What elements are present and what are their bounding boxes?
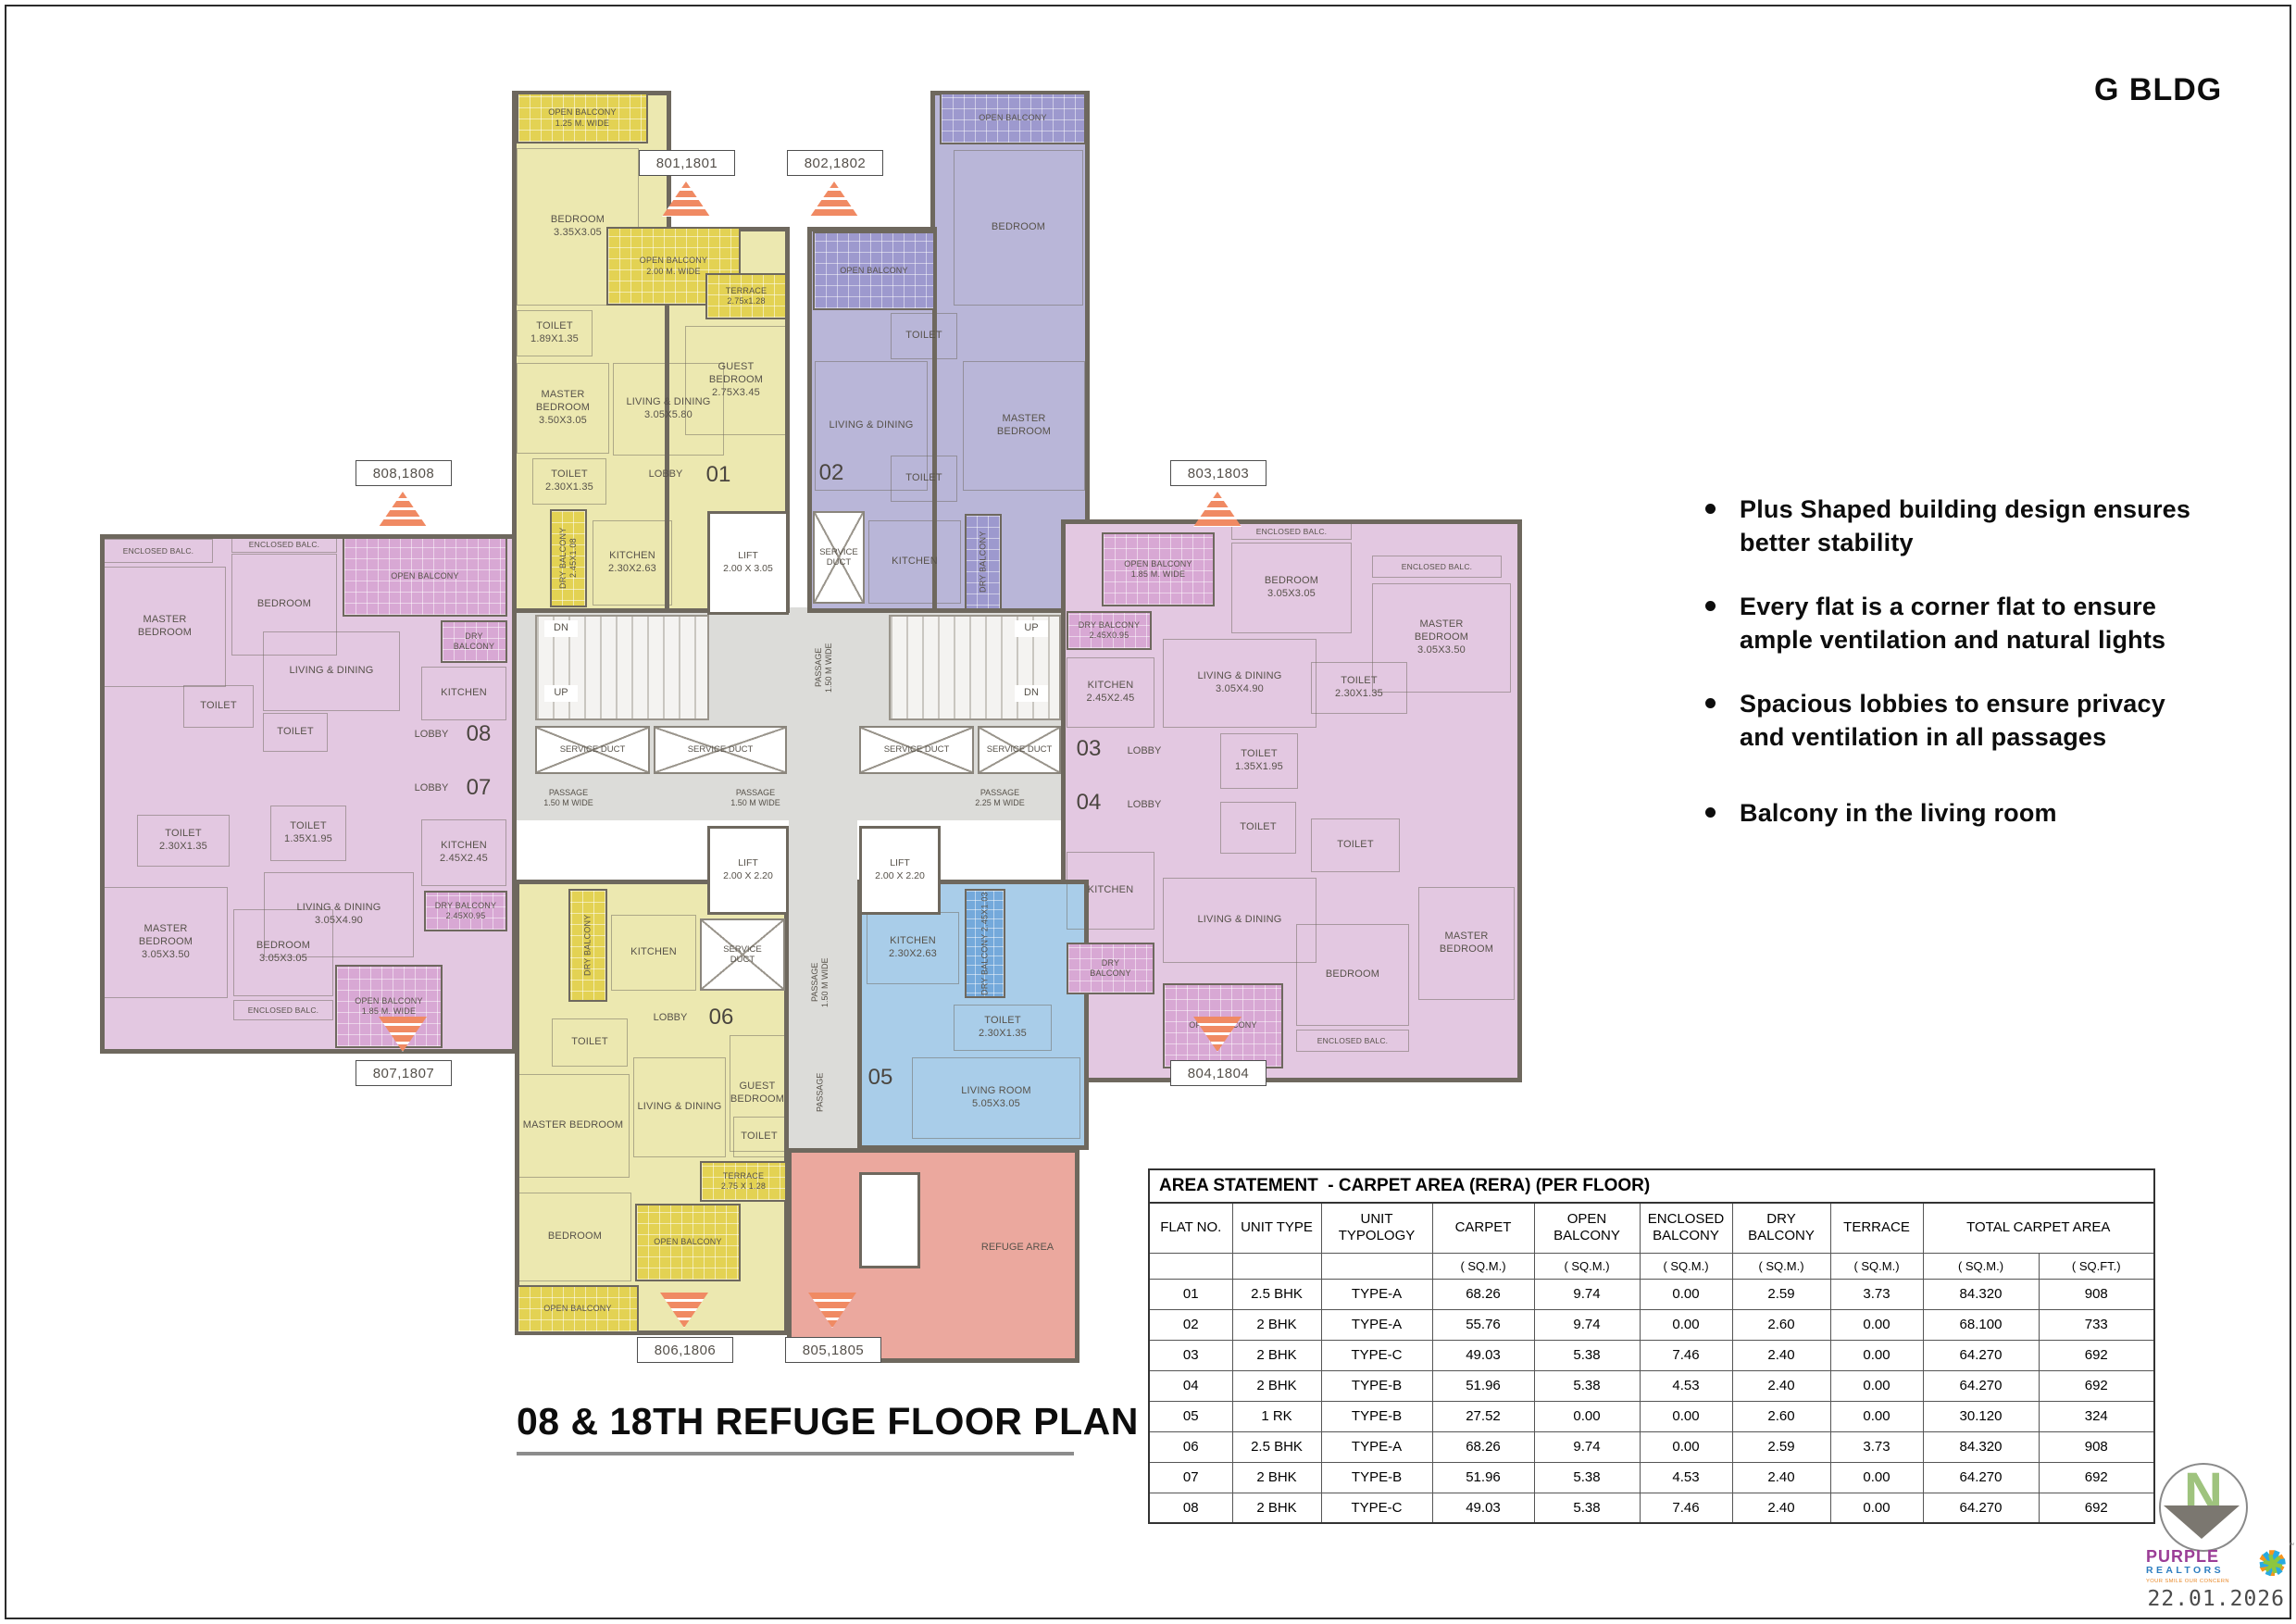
room-toilet: TOILET [891,456,957,502]
cell-enclosed-balcony: 0.00 [1640,1279,1732,1309]
passage-label-vertical: PASSAGE 1.50 M WIDE [794,922,846,1043]
lift-shaft: LIFT 2.00 X 2.20 [707,826,789,915]
service-duct: SERVICE DUCT [700,918,785,991]
room-living-dining: LIVING & DINING [263,631,400,711]
room-master-bedroom: MASTER BEDROOM [517,1074,630,1178]
cell-open-balcony: 9.74 [1534,1431,1640,1462]
north-compass-icon: N [2159,1463,2248,1552]
direction-marker-icon [810,181,858,217]
table-row: 08 2 BHK TYPE-C 49.03 5.38 7.46 2.40 0.0… [1149,1493,2154,1523]
col-unit: ( SQ.M.) [1640,1253,1732,1279]
building-title: G BLDG [2094,72,2222,108]
cell-enclosed-balcony: 0.00 [1640,1431,1732,1462]
brand-subname: REALTORS [2146,1565,2255,1578]
brand-star-icon: ✱ ✱ ✱ ™ [2252,1544,2292,1585]
room-kitchen: KITCHEN [868,520,961,604]
cell-unit-type: 2 BHK [1232,1462,1321,1493]
cell-typology: TYPE-B [1321,1370,1432,1401]
room-master-bedroom: MASTER BEDROOM 3.05X3.50 [104,887,228,998]
service-duct: SERVICE DUCT [535,726,650,774]
table-row: 03 2 BHK TYPE-C 49.03 5.38 7.46 2.40 0.0… [1149,1340,2154,1370]
service-duct: SERVICE DUCT [859,726,974,774]
north-arrow-icon [2164,1505,2240,1539]
cell-carpet: 51.96 [1432,1370,1534,1401]
lobby-label: LOBBY [637,463,694,487]
refuge-notch [859,1172,920,1268]
room-bedroom: BEDROOM 3.05X3.05 [1231,543,1352,633]
cell-carpet: 49.03 [1432,1340,1534,1370]
open-balcony: OPEN BALCONY [517,1285,639,1333]
room-toilet: TOILET 1.35X1.95 [270,806,346,861]
table-row: 01 2.5 BHK TYPE-A 68.26 9.74 0.00 2.59 3… [1149,1279,2154,1309]
unit-label-804: 804,1804 [1170,1060,1267,1086]
cell-unit-type: 2 BHK [1232,1370,1321,1401]
service-duct: SERVICE DUCT [654,726,787,774]
room-toilet: TOILET [1311,818,1400,872]
cell-flat-no: 02 [1149,1309,1232,1340]
unit-label-802: 802,1802 [787,150,883,176]
col-header: UNIT TYPE [1232,1203,1321,1253]
cell-open-balcony: 5.38 [1534,1462,1640,1493]
room-bedroom: BEDROOM [1296,924,1409,1026]
cell-enclosed-balcony: 0.00 [1640,1401,1732,1431]
unit-label-801: 801,1801 [639,150,735,176]
cell-carpet: 55.76 [1432,1309,1534,1340]
cell-total-sqft: 692 [2039,1340,2154,1370]
feature-text: Plus Shaped building design ensures bett… [1740,493,2205,560]
bullet-icon [1705,504,1716,514]
cell-flat-no: 01 [1149,1279,1232,1309]
cell-terrace: 0.00 [1830,1309,1923,1340]
room-toilet: TOILET 2.30X1.35 [137,815,230,867]
cell-typology: TYPE-A [1321,1309,1432,1340]
cell-open-balcony: 0.00 [1534,1401,1640,1431]
col-header: TOTAL CARPET AREA [1923,1203,2154,1253]
cell-terrace: 3.73 [1830,1279,1923,1309]
area-statement-table: AREA STATEMENT - CARPET AREA (RERA) (PER… [1148,1168,2155,1524]
dry-balcony: DRY BALCONY [568,889,607,1002]
cell-terrace: 0.00 [1830,1493,1923,1523]
room-toilet: TOILET 2.30X1.35 [1311,662,1407,714]
feature-item: Plus Shaped building design ensures bett… [1705,493,2205,560]
open-balcony: OPEN BALCONY 1.85 M. WIDE [335,965,443,1048]
room-master-bedroom: MASTER BEDROOM 3.50X3.05 [517,363,609,454]
dry-balcony: DRY BALCONY [965,514,1002,610]
lift-shaft: LIFT 2.00 X 3.05 [707,511,789,615]
room-toilet: TOILET [552,1018,628,1067]
cell-unit-type: 2 BHK [1232,1493,1321,1523]
cell-flat-no: 04 [1149,1370,1232,1401]
col-header: OPEN BALCONY [1534,1203,1640,1253]
unit-number: 03 [1072,735,1105,763]
cell-total-sqft: 908 [2039,1431,2154,1462]
room-toilet: TOILET [891,313,957,359]
room-kitchen: KITCHEN [611,915,696,991]
brand-tagline: YOUR SMILE OUR CONCERN [2146,1578,2255,1586]
service-duct: SERVICE DUCT [978,726,1061,774]
col-unit: ( SQ.M.) [1923,1253,2039,1279]
unit-number: 05 [863,1063,898,1093]
cell-dry-balcony: 2.59 [1732,1279,1830,1309]
terrace: TERRACE 2.75x1.28 [705,273,787,319]
unit-label-805: 805,1805 [785,1337,881,1363]
cell-carpet: 68.26 [1432,1431,1534,1462]
col-unit [1321,1253,1432,1279]
cell-enclosed-balcony: 7.46 [1640,1493,1732,1523]
cell-terrace: 0.00 [1830,1462,1923,1493]
bullet-icon [1705,807,1716,818]
room-kitchen: KITCHEN 2.45X2.45 [421,819,506,886]
cell-enclosed-balcony: 7.46 [1640,1340,1732,1370]
col-unit: ( SQ.M.) [1534,1253,1640,1279]
unit-label-806: 806,1806 [637,1337,733,1363]
bullet-icon [1705,698,1716,708]
cell-total-sqm: 64.270 [1923,1340,2039,1370]
terrace: TERRACE 2.75 X 1.28 [700,1161,787,1202]
room-kitchen: KITCHEN 2.30X2.63 [593,520,672,606]
room-master-bedroom: MASTER BEDROOM [104,567,226,687]
lobby-label: LOBBY [643,1007,698,1030]
passage-label-vertical: PASSAGE [802,1046,839,1139]
col-unit: ( SQ.M.) [1830,1253,1923,1279]
enclosed-balcony: ENCLOSED BALC. [1231,523,1352,540]
page-title: 08 & 18TH REFUGE FLOOR PLAN [517,1400,1139,1443]
feature-item: Balcony in the living room [1705,797,2205,831]
room-toilet: TOILET 1.35X1.95 [1220,733,1298,789]
cell-terrace: 3.73 [1830,1431,1923,1462]
cell-unit-type: 2 BHK [1232,1309,1321,1340]
room-toilet: TOILET [1220,802,1296,854]
table-row: 02 2 BHK TYPE-A 55.76 9.74 0.00 2.60 0.0… [1149,1309,2154,1340]
col-header: TERRACE [1830,1203,1923,1253]
cell-unit-type: 2.5 BHK [1232,1431,1321,1462]
enclosed-balcony: ENCLOSED BALC. [1372,556,1502,578]
stair-up-label: UP [1015,620,1048,637]
open-balcony: OPEN BALCONY [343,537,507,617]
cell-total-sqft: 733 [2039,1309,2154,1340]
room-guest-bedroom: GUEST BEDROOM 2.75X3.45 [685,326,787,435]
passage-label-vertical: PASSAGE 1.50 M WIDE [802,618,846,717]
cell-total-sqm: 64.270 [1923,1462,2039,1493]
cell-flat-no: 06 [1149,1431,1232,1462]
unit-label-808: 808,1808 [356,460,452,486]
cell-total-sqft: 692 [2039,1370,2154,1401]
cell-terrace: 0.00 [1830,1401,1923,1431]
cell-terrace: 0.00 [1830,1370,1923,1401]
cell-typology: TYPE-C [1321,1340,1432,1370]
title-underline [517,1452,1074,1455]
room-toilet: TOILET 2.30X1.35 [954,1005,1052,1051]
room-master-bedroom: MASTER BEDROOM [1418,887,1515,1000]
unit-number: 06 [705,1004,737,1031]
room-master-bedroom: MASTER BEDROOM [963,361,1085,491]
table-body: 01 2.5 BHK TYPE-A 68.26 9.74 0.00 2.59 3… [1149,1279,2154,1523]
col-unit: ( SQ.FT.) [2039,1253,2154,1279]
feature-text: Every flat is a corner flat to ensure am… [1740,591,2205,657]
room-living: LIVING ROOM 5.05X3.05 [912,1057,1080,1139]
passage-label: PASSAGE 1.50 M WIDE [704,778,807,818]
unit-number: 02 [815,459,848,487]
room-bedroom: BEDROOM [518,1193,631,1281]
cell-carpet: 49.03 [1432,1493,1534,1523]
open-balcony: OPEN BALCONY [635,1204,741,1281]
cell-flat-no: 03 [1149,1340,1232,1370]
lobby-label: LOBBY [404,778,459,800]
cell-flat-no: 07 [1149,1462,1232,1493]
enclosed-balcony: ENCLOSED BALC. [1296,1030,1409,1052]
cell-carpet: 51.96 [1432,1462,1534,1493]
brand-logo: PURPLE REALTORS YOUR SMILE OUR CONCERN [2146,1548,2255,1586]
cell-open-balcony: 5.38 [1534,1493,1640,1523]
cell-dry-balcony: 2.40 [1732,1370,1830,1401]
cell-dry-balcony: 2.40 [1732,1340,1830,1370]
open-balcony: OPEN BALCONY [813,231,935,310]
feature-item: Every flat is a corner flat to ensure am… [1705,591,2205,657]
col-header: ENCLOSED BALCONY [1640,1203,1732,1253]
dry-balcony: DRY BALCONY 2.45X1.08 [550,509,587,607]
passage-label: PASSAGE 1.50 M WIDE [517,778,620,818]
lobby-label: LOBBY [1117,794,1172,817]
service-duct: SERVICE DUCT [813,511,865,604]
cell-typology: TYPE-B [1321,1462,1432,1493]
cell-total-sqft: 908 [2039,1279,2154,1309]
room-kitchen: KITCHEN 2.30X2.63 [867,912,959,984]
open-balcony: OPEN BALCONY [940,93,1086,144]
open-balcony: OPEN BALCONY 1.85 M. WIDE [1102,532,1215,606]
cell-total-sqm: 84.320 [1923,1279,2039,1309]
cell-typology: TYPE-A [1321,1279,1432,1309]
cell-dry-balcony: 2.60 [1732,1309,1830,1340]
unit-number: 04 [1072,789,1105,817]
cell-total-sqft: 692 [2039,1493,2154,1523]
cell-typology: TYPE-C [1321,1493,1432,1523]
room-toilet: TOILET 1.89X1.35 [517,310,593,356]
direction-marker-icon [379,492,427,527]
table-row: 05 1 RK TYPE-B 27.52 0.00 0.00 2.60 0.00… [1149,1401,2154,1431]
passage-label: PASSAGE 2.25 M WIDE [942,778,1057,818]
cell-dry-balcony: 2.60 [1732,1401,1830,1431]
cell-unit-type: 2 BHK [1232,1340,1321,1370]
enclosed-balcony: ENCLOSED BALC. [231,537,337,553]
unit-label-803: 803,1803 [1170,460,1267,486]
lobby-label: LOBBY [404,724,459,746]
cell-total-sqm: 64.270 [1923,1370,2039,1401]
cell-open-balcony: 5.38 [1534,1370,1640,1401]
col-header: UNIT TYPOLOGY [1321,1203,1432,1253]
cell-unit-type: 2.5 BHK [1232,1279,1321,1309]
direction-marker-icon [1193,492,1242,527]
stair-dn-label: DN [1015,685,1048,702]
cell-open-balcony: 9.74 [1534,1279,1640,1309]
feature-list: Plus Shaped building design ensures bett… [1705,493,2205,831]
room-living-dining: LIVING & DINING [1163,878,1316,963]
lobby-label: LOBBY [1117,741,1172,763]
table-row: 07 2 BHK TYPE-B 51.96 5.38 4.53 2.40 0.0… [1149,1462,2154,1493]
col-unit [1232,1253,1321,1279]
dry-balcony: DRY BALCONY [441,620,507,663]
col-unit [1149,1253,1232,1279]
room-living-dining: LIVING & DINING 3.05X4.90 [1163,639,1316,728]
cell-open-balcony: 9.74 [1534,1309,1640,1340]
unit-number: 07 [463,774,494,802]
room-toilet: TOILET [263,713,328,752]
cell-terrace: 0.00 [1830,1340,1923,1370]
enclosed-balcony: ENCLOSED BALC. [104,539,213,563]
room-kitchen: KITCHEN [1067,852,1154,930]
cell-total-sqm: 84.320 [1923,1431,2039,1462]
table-title-row: AREA STATEMENT - CARPET AREA (RERA) (PER… [1149,1169,2154,1203]
room-bedroom: BEDROOM 3.05X3.05 [233,909,333,996]
table-title: AREA STATEMENT - CARPET AREA (RERA) (PER… [1149,1169,2154,1203]
enclosed-balcony: ENCLOSED BALC. [233,1000,333,1020]
cell-open-balcony: 5.38 [1534,1340,1640,1370]
bullet-icon [1705,601,1716,611]
unit-label-807: 807,1807 [356,1060,452,1086]
cell-unit-type: 1 RK [1232,1401,1321,1431]
feature-item: Spacious lobbies to ensure privacy and v… [1705,688,2205,755]
unit-number: 01 [702,461,735,489]
table-row: 06 2.5 BHK TYPE-A 68.26 9.74 0.00 2.59 3… [1149,1431,2154,1462]
lift-shaft: LIFT 2.00 X 2.20 [859,826,941,915]
cell-total-sqm: 30.120 [1923,1401,2039,1431]
dry-balcony: DRY BALCONY 2.45X0.95 [1067,611,1152,650]
cell-total-sqft: 324 [2039,1401,2154,1431]
trademark-symbol: ™ [2287,1543,2296,1549]
col-header: FLAT NO. [1149,1203,1232,1253]
room-toilet: TOILET [183,685,254,728]
room-kitchen: KITCHEN 2.45X2.45 [1067,657,1154,728]
refuge-area-label: REFUGE AREA [963,1237,1072,1259]
cell-total-sqm: 64.270 [1923,1493,2039,1523]
cell-enclosed-balcony: 4.53 [1640,1462,1732,1493]
cell-carpet: 27.52 [1432,1401,1534,1431]
col-header: CARPET [1432,1203,1534,1253]
stair-dn-label: DN [544,620,578,637]
cell-flat-no: 05 [1149,1401,1232,1431]
room-living-dining: LIVING & DINING [633,1057,726,1157]
feature-text: Spacious lobbies to ensure privacy and v… [1740,688,2205,755]
open-balcony: OPEN BALCONY 1.25 M. WIDE [517,93,648,144]
stair-up-label: UP [544,685,578,702]
cell-typology: TYPE-A [1321,1431,1432,1462]
dry-balcony: DRY BALCONY 2.45X1.03 [965,889,1005,998]
cell-typology: TYPE-B [1321,1401,1432,1431]
cell-flat-no: 08 [1149,1493,1232,1523]
cell-dry-balcony: 2.40 [1732,1493,1830,1523]
brand-name: PURPLE [2146,1548,2255,1565]
cell-dry-balcony: 2.59 [1732,1431,1830,1462]
table-row: 04 2 BHK TYPE-B 51.96 5.38 4.53 2.40 0.0… [1149,1370,2154,1401]
col-unit: ( SQ.M.) [1732,1253,1830,1279]
cell-dry-balcony: 2.40 [1732,1462,1830,1493]
unit-number: 08 [463,720,494,748]
cell-total-sqm: 68.100 [1923,1309,2039,1340]
room-kitchen: KITCHEN [421,667,506,720]
room-bedroom: BEDROOM [954,150,1083,306]
col-unit: ( SQ.M.) [1432,1253,1534,1279]
cell-enclosed-balcony: 4.53 [1640,1370,1732,1401]
feature-text: Balcony in the living room [1740,797,2057,831]
col-header: DRY BALCONY [1732,1203,1830,1253]
dry-balcony: DRY BALCONY [1067,943,1154,994]
cell-total-sqft: 692 [2039,1462,2154,1493]
room-toilet: TOILET [733,1117,785,1157]
cell-enclosed-balcony: 0.00 [1640,1309,1732,1340]
refuge-floor-plan-page: { "page": { "building": "G BLDG", "title… [0,0,2296,1624]
table-header-row: FLAT NO. UNIT TYPE UNIT TYPOLOGY CARPET … [1149,1203,2154,1253]
dry-balcony: DRY BALCONY 2.45X0.95 [424,891,507,931]
room-toilet: TOILET 2.30X1.35 [532,458,606,505]
plan-date: 22.01.2026 [2129,1587,2285,1611]
cell-carpet: 68.26 [1432,1279,1534,1309]
table-subheader-row: ( SQ.M.) ( SQ.M.) ( SQ.M.) ( SQ.M.) ( SQ… [1149,1253,2154,1279]
